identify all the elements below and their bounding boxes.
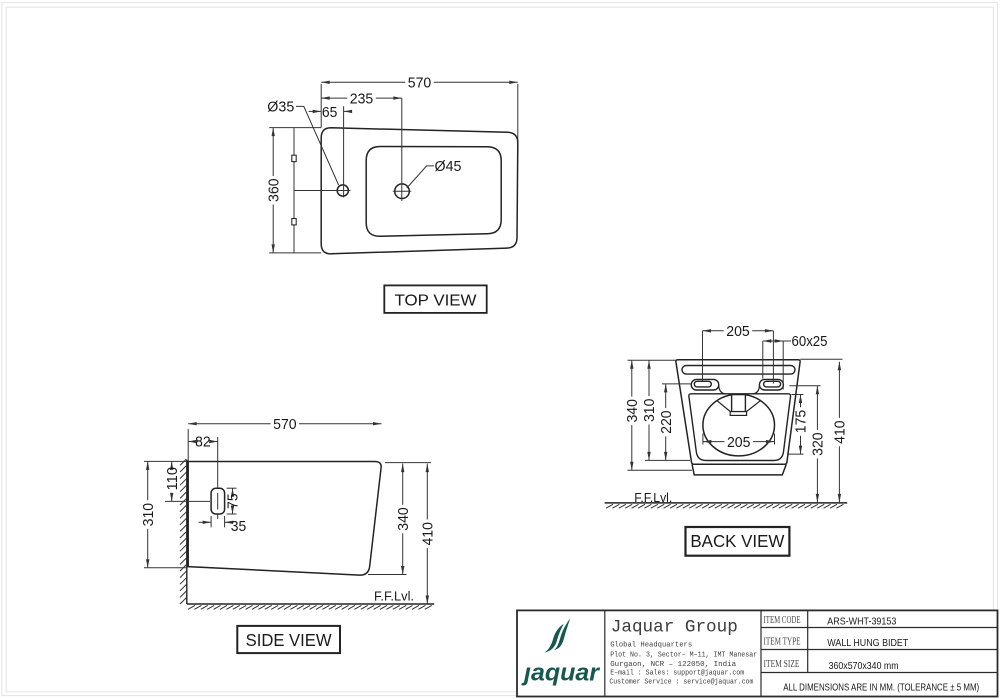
svg-text:340: 340 [396, 507, 412, 531]
svg-text:Global Headquarters: Global Headquarters [610, 641, 692, 649]
svg-text:310: 310 [642, 399, 658, 423]
svg-text:175: 175 [794, 410, 810, 434]
svg-text:205: 205 [726, 324, 750, 340]
svg-text:ALL DIMENSIONS ARE IN MM. (TOL: ALL DIMENSIONS ARE IN MM. (TOLERANCE ± 5… [783, 682, 979, 693]
svg-text:205: 205 [727, 435, 751, 451]
svg-text:65: 65 [322, 105, 338, 121]
svg-text:Ø35: Ø35 [267, 99, 294, 115]
svg-text:220: 220 [659, 410, 675, 434]
svg-text:360: 360 [266, 178, 282, 202]
svg-text:60x25: 60x25 [792, 334, 828, 350]
svg-text:ARS-WHT-39153: ARS-WHT-39153 [827, 615, 896, 627]
svg-text:E–mail : Sales: support@jaquar: E–mail : Sales: support@jaquar.com [610, 669, 744, 677]
svg-text:35: 35 [231, 519, 247, 535]
svg-text:TOP VIEW: TOP VIEW [395, 292, 478, 309]
svg-text:WALL HUNG BIDET: WALL HUNG BIDET [827, 637, 908, 649]
svg-text:SIDE VIEW: SIDE VIEW [246, 630, 332, 650]
svg-text:ITEM SIZE: ITEM SIZE [764, 659, 800, 670]
svg-text:570: 570 [273, 417, 297, 433]
svg-text:Plot No. 3, Sector– M–11, IMT: Plot No. 3, Sector– M–11, IMT Manesar [610, 652, 757, 660]
svg-text:ITEM TYPE: ITEM TYPE [764, 636, 801, 647]
svg-text:340: 340 [625, 399, 641, 423]
svg-text:410: 410 [421, 522, 437, 546]
svg-text:ȷaquar: ȷaquar [521, 660, 601, 687]
svg-text:310: 310 [141, 503, 157, 527]
svg-text:110: 110 [165, 467, 181, 491]
svg-text:ITEM CODE: ITEM CODE [764, 615, 801, 626]
svg-text:Ø45: Ø45 [435, 159, 462, 175]
svg-text:570: 570 [408, 76, 432, 92]
svg-text:Jaquar Group: Jaquar Group [611, 618, 738, 638]
svg-text:75: 75 [226, 493, 242, 509]
svg-text:Gurgaon, NCR – 122050, India: Gurgaon, NCR – 122050, India [610, 661, 736, 669]
svg-text:410: 410 [833, 420, 849, 444]
svg-text:BACK VIEW: BACK VIEW [690, 531, 784, 551]
svg-text:235: 235 [350, 91, 374, 107]
svg-text:320: 320 [811, 432, 827, 456]
svg-text:360x570x340 mm: 360x570x340 mm [829, 660, 899, 672]
svg-text:Customer Service : service@jaq: Customer Service : service@jaquar.com [609, 679, 753, 687]
svg-text:82: 82 [195, 435, 211, 451]
svg-text:F.F.Lvl.: F.F.Lvl. [374, 589, 414, 603]
